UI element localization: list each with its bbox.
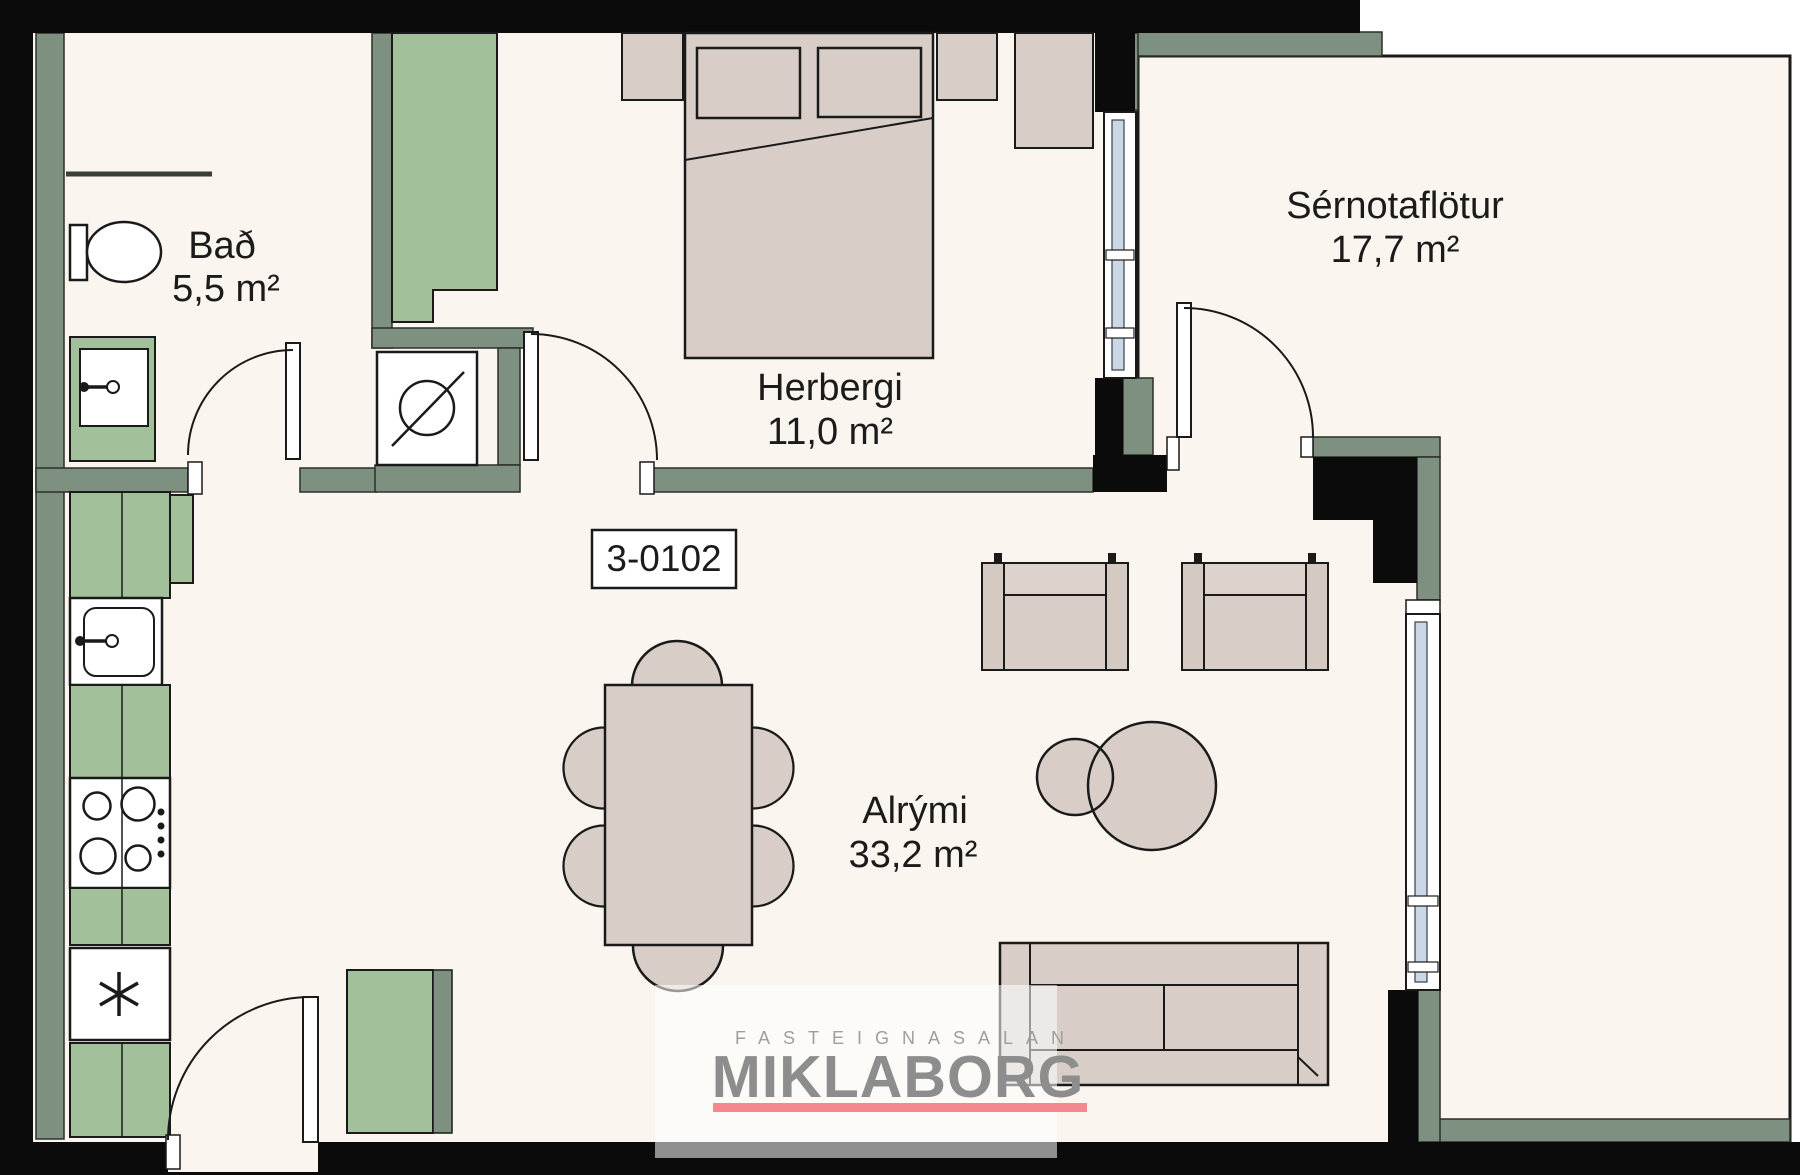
bed xyxy=(685,33,933,358)
wall-corner xyxy=(1093,455,1167,492)
unit-number-box: 3-0102 xyxy=(592,530,736,588)
watermark: FASTEIGNASALAN MIKLABORG xyxy=(655,985,1087,1158)
private-area-area: 17,7 m² xyxy=(1331,229,1460,271)
unit-number: 3-0102 xyxy=(606,538,721,579)
bedroom-name: Herbergi xyxy=(757,367,903,409)
left-lining xyxy=(36,33,64,1139)
bedroom-area: 11,0 m² xyxy=(767,411,893,453)
door-leaf xyxy=(286,343,300,459)
bathroom-vanity xyxy=(70,337,155,461)
private-area-name: Sérnotaflötur xyxy=(1286,185,1504,227)
shaft-closet xyxy=(392,33,497,322)
wall-bedroom-se xyxy=(1095,378,1123,455)
living-area-area: 33,2 m² xyxy=(849,834,978,876)
entry-opening xyxy=(168,1142,318,1172)
wall-patio-corner-b xyxy=(1373,520,1417,583)
nightstand xyxy=(937,33,997,100)
bathroom-name: Bað xyxy=(188,225,256,267)
watermark-brand: MIKLABORG xyxy=(712,1044,1085,1110)
floor-plan: Bað 5,5 m² Herbergi 11,0 m² Sérnotaflötu… xyxy=(0,0,1800,1175)
window-glass xyxy=(1415,622,1427,982)
patio-lining xyxy=(1438,1119,1790,1142)
kitchen-sink-icon xyxy=(70,598,162,685)
topright-lining xyxy=(1118,32,1382,56)
living-area-name: Alrými xyxy=(862,790,968,832)
door-jamb xyxy=(166,1135,180,1169)
washer-icon xyxy=(377,352,477,465)
door-jamb xyxy=(640,462,654,494)
pillow xyxy=(818,48,921,117)
wall-left xyxy=(0,0,33,1175)
wardrobe xyxy=(1015,33,1093,148)
door-leaf xyxy=(524,332,538,460)
bathroom-area: 5,5 m² xyxy=(172,268,280,310)
entry-closet xyxy=(347,970,452,1133)
toilet-icon xyxy=(70,222,161,282)
wall-living-se xyxy=(1388,990,1418,1142)
armchair xyxy=(1182,553,1328,670)
door-jamb xyxy=(188,462,202,494)
pillow xyxy=(697,48,800,118)
door-jamb xyxy=(1301,437,1313,457)
living-window xyxy=(1406,600,1440,990)
dining-table xyxy=(605,685,752,945)
cooktop-icon xyxy=(70,778,170,888)
tall-cabinet xyxy=(170,495,193,583)
watermark-underline xyxy=(713,1103,1087,1112)
wall-bedroom-ne xyxy=(1095,0,1135,112)
bedroom-window xyxy=(1104,112,1136,378)
door-jamb xyxy=(1167,437,1179,470)
armchair xyxy=(982,553,1128,670)
wall-top xyxy=(0,0,1360,33)
nightstand xyxy=(622,33,683,100)
floor-plan-svg: Bað 5,5 m² Herbergi 11,0 m² Sérnotaflötu… xyxy=(0,0,1800,1175)
freezer-icon xyxy=(70,948,170,1040)
wall-patio-corner-a xyxy=(1313,457,1417,520)
door-leaf xyxy=(1177,303,1191,437)
entry-door-leaf xyxy=(303,997,318,1142)
